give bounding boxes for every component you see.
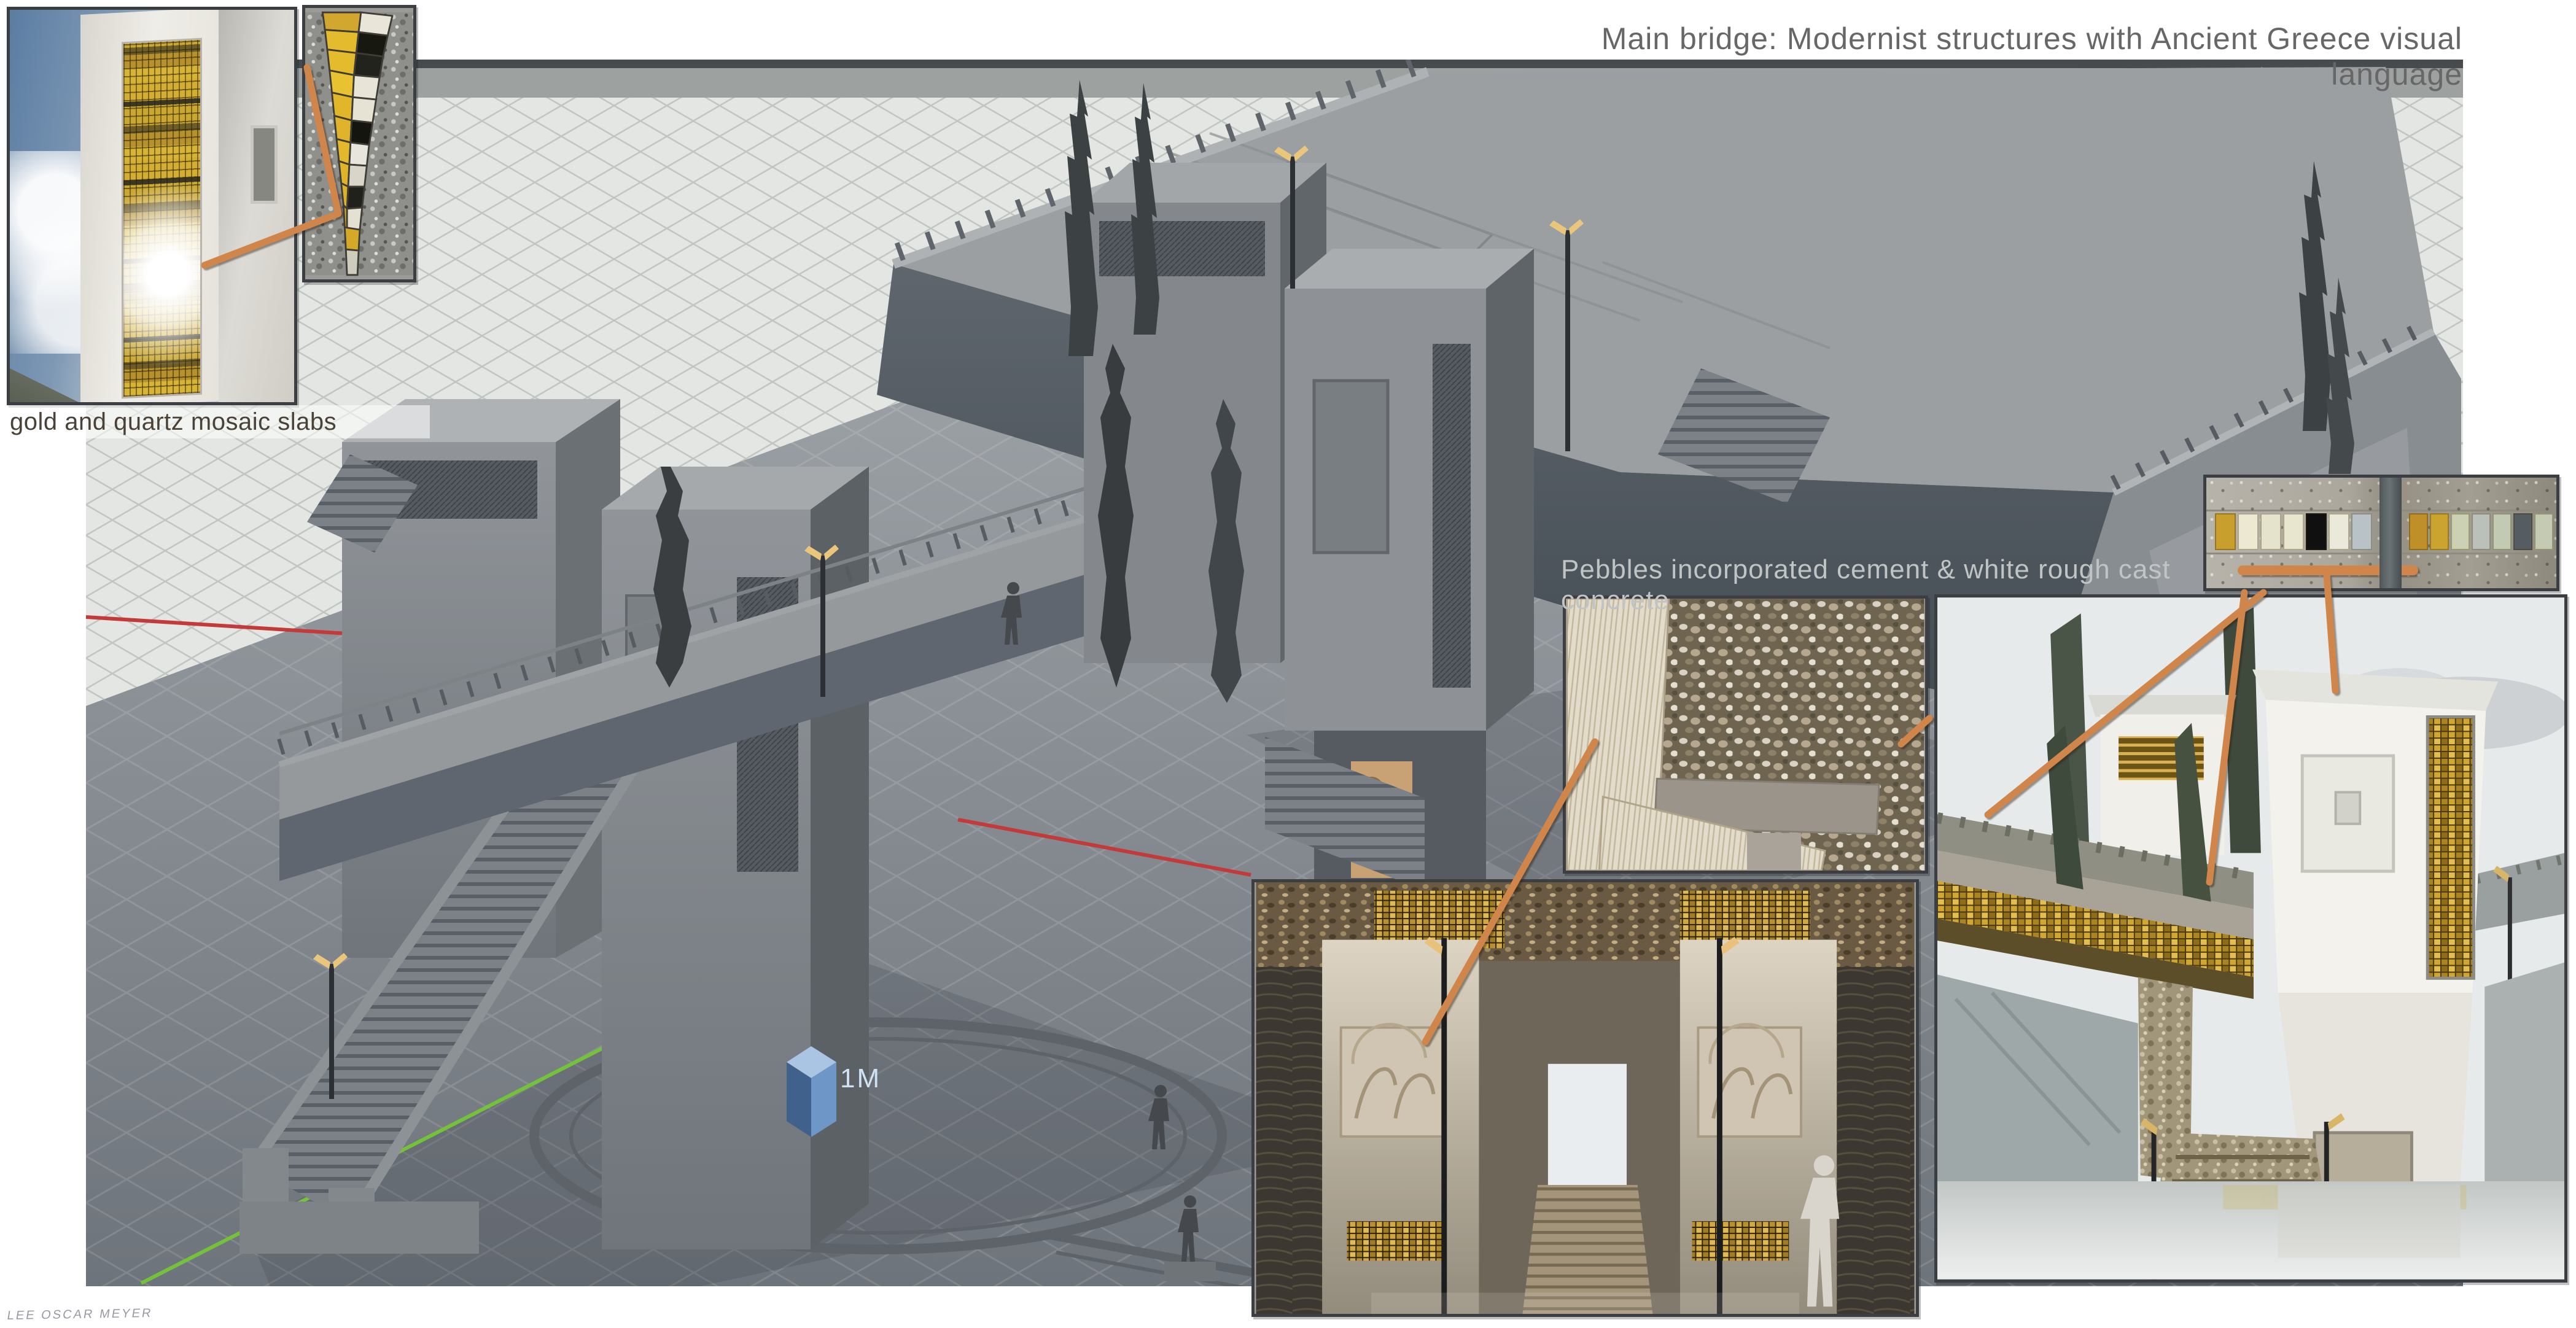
palette-tile [2215,513,2236,550]
scale-cube [787,1046,836,1137]
scale-cube-label: 1M [840,1063,881,1094]
palette-tile [2260,513,2281,550]
tower-door [1314,381,1388,553]
render-portal-entrance [1251,879,1919,1317]
palette-tile [2534,513,2553,550]
sky-opening [1548,1064,1627,1185]
palette-tile [2306,513,2327,550]
palette-tile [2492,513,2512,550]
artist-signature: LEE OSCAR MEYER [6,1307,154,1323]
window-slot [251,125,278,204]
left-front-tower [602,467,869,1249]
render-textured-bridge [1934,594,2567,1283]
palette-tile [2451,513,2470,550]
palette-tile [2238,513,2259,550]
gold-mosaic-panel [123,40,200,397]
marble-wall-right [2485,963,2564,1182]
pebble-concrete-graphic [1566,599,1925,871]
palette-tile [2430,513,2449,550]
gold-ceiling-strip [1680,891,1810,949]
roof-corner [10,351,91,405]
caption-pebble-concrete: Pebbles incorporated cement & white roug… [1561,554,2175,616]
mosaic-closeup-graphic [305,8,413,279]
reference-photo-pebble-concrete [1563,596,1928,874]
relief-panel-right [1698,1024,1801,1136]
board-title: Main bridge: Modernist structures with A… [1461,21,2462,92]
palette-tile [2329,513,2349,550]
reference-photo-gold-building [7,7,297,405]
portal-render-graphic [1255,882,1916,1314]
textured-bridge-graphic [1937,597,2564,1279]
palette-tile [2472,513,2491,550]
gold-ceiling-strip [1374,891,1504,949]
stair-landing [239,1202,479,1254]
caption-gold-mosaic: gold and quartz mosaic slabs [0,405,430,438]
material-palette-strip [2203,475,2559,591]
side-building [219,10,297,405]
gold-window-band [1692,1221,1789,1260]
palette-tile [2351,513,2372,550]
floor-sheen [1371,1292,1799,1314]
concrete-column [1747,833,1801,871]
relief-panel-left [1341,1025,1444,1137]
pipe-divider [2379,478,2402,588]
palette-tile [2409,513,2428,550]
palette-tile [2513,513,2532,550]
concept-art-board: Main bridge: Modernist structures with A… [0,0,2576,1328]
palette-tile [2283,513,2304,550]
gold-window-band [1347,1221,1444,1260]
gold-mosaic-strip [2427,717,2473,979]
reference-photo-mosaic-closeup [302,5,416,282]
